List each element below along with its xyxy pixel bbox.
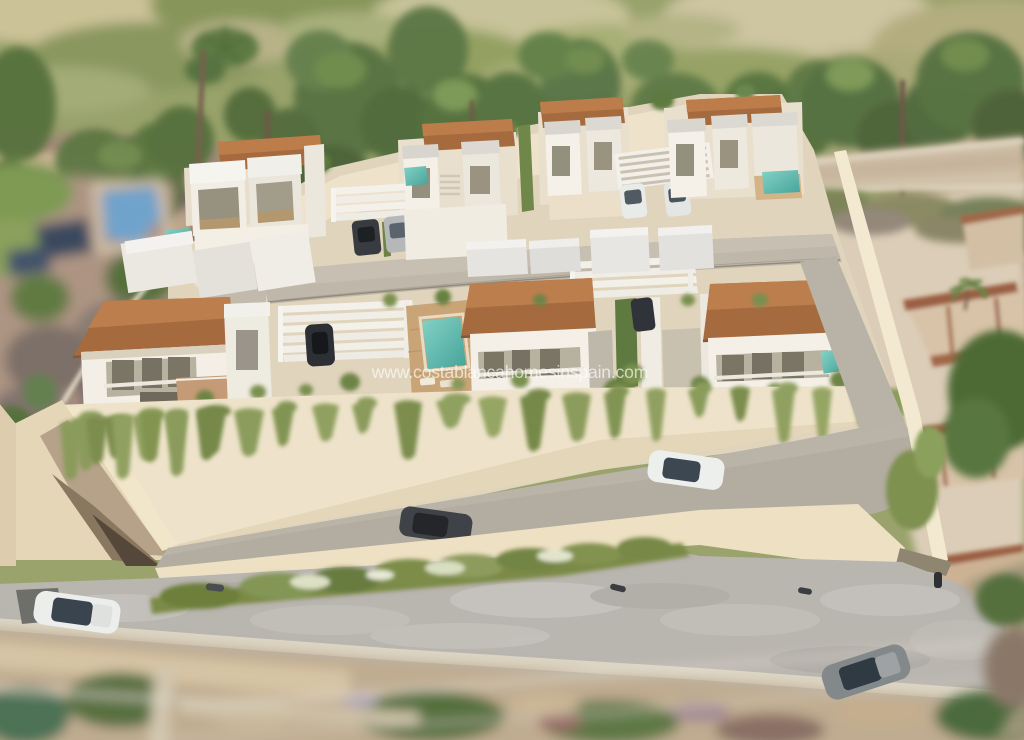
svg-text:www.costablancahomesinspain.co: www.costablancahomesinspain.com [371, 362, 648, 382]
